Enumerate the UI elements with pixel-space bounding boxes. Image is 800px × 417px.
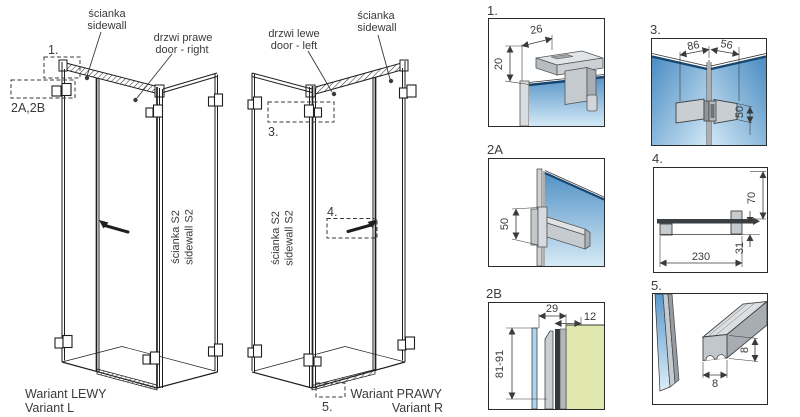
hinge-icon xyxy=(143,355,150,364)
left-texts: ścianka sidewall drzwi prawe door - righ… xyxy=(11,8,212,415)
variant-left-line2: Variant L xyxy=(25,401,74,415)
handle-bar xyxy=(657,219,753,224)
hinge-icon xyxy=(151,352,160,364)
wall-profile xyxy=(520,81,529,126)
dimension-20 xyxy=(505,46,529,85)
callout-2ab-label: 2A,2B xyxy=(11,101,45,115)
dim-20-text: 20 xyxy=(493,58,505,70)
callout-4-label: 4. xyxy=(327,205,337,219)
threshold-profile xyxy=(703,302,767,361)
detail-box-5: 8 8 xyxy=(652,293,768,405)
dim-50-text: 50 xyxy=(734,106,746,118)
left-drawing-svg: ścianka sidewall drzwi prawe door - righ… xyxy=(0,0,240,417)
dim-70-text: 70 xyxy=(746,192,758,204)
hinge-icon xyxy=(315,108,322,117)
variant-right-line2: Variant R xyxy=(392,401,443,415)
rear-bracket-icon xyxy=(254,345,262,357)
corner-hinge xyxy=(676,99,737,124)
door-label-line2: door - left xyxy=(271,40,317,52)
dimension-12 xyxy=(555,317,581,325)
detail-4-label: 4. xyxy=(652,152,663,166)
wall-bracket-icon xyxy=(406,337,415,349)
left-door-handle-icon xyxy=(99,220,128,232)
top-bar-wall-end xyxy=(400,60,408,71)
dim-230-text: 230 xyxy=(692,251,710,263)
technical-diagram-canvas: ścianka sidewall drzwi prawe door - righ… xyxy=(0,0,800,417)
sidewall-label-line2: sidewall xyxy=(87,20,126,32)
detail-1-label: 1. xyxy=(487,4,498,18)
s2-label-line1: ścianka S2 xyxy=(170,210,182,264)
dimension-81-91 xyxy=(506,328,547,399)
wall-profile-section xyxy=(545,329,566,409)
dim-8-width-text: 8 xyxy=(712,378,718,390)
detail-box-3: 86 56 50 xyxy=(651,38,767,146)
right-drawing-svg: drzwi lewe door - left ścianka sidewall … xyxy=(240,0,480,417)
wall-bracket-icon xyxy=(62,84,71,96)
dim-29-text: 29 xyxy=(546,303,558,315)
left-brackets xyxy=(52,84,223,365)
wall-bracket-icon xyxy=(398,340,406,350)
callout-box-3 xyxy=(268,102,334,122)
detail-3-drawing: 86 56 50 xyxy=(652,39,766,145)
dimension-29 xyxy=(539,314,566,328)
hinge-icon xyxy=(154,105,163,117)
dim-56-text: 56 xyxy=(719,39,733,52)
detail-box-2b: 29 12 81-91 xyxy=(488,302,605,410)
variant-left-line1: Wariant LEWY xyxy=(25,387,107,401)
handle-side-view xyxy=(657,211,760,235)
wall-bracket-icon xyxy=(55,338,63,348)
handle-mount-left xyxy=(660,224,672,235)
wall-bracket-icon xyxy=(52,86,61,96)
detail-2a-drawing: 50 xyxy=(489,159,604,266)
dim-8-height-text: 8 xyxy=(739,347,751,353)
callout-box-4 xyxy=(327,219,377,239)
dim-12-text: 12 xyxy=(584,311,596,323)
detail-4-drawing: 70 31 230 xyxy=(654,168,767,272)
dim-86-text: 86 xyxy=(686,39,700,53)
detail-box-4: 70 31 230 xyxy=(653,167,768,273)
hinge-icon xyxy=(305,105,314,117)
wall-bracket-icon xyxy=(407,85,416,97)
hinge-icon xyxy=(304,354,313,366)
wall-bracket-icon xyxy=(63,336,72,348)
callout-1-label: 1. xyxy=(48,43,58,57)
detail-1-drawing: 26 20 xyxy=(489,19,604,126)
callout-3-label: 3. xyxy=(268,125,278,139)
sidewall-label-line2: sidewall xyxy=(357,22,396,34)
detail-2b-label: 2B xyxy=(486,287,502,301)
s2-label-line1: ścianka S2 xyxy=(270,211,282,265)
detail-2b-drawing: 29 12 81-91 xyxy=(489,303,604,409)
dim-50-text: 50 xyxy=(499,218,511,230)
detail-2a-label: 2A xyxy=(487,143,503,157)
dim-31-text: 31 xyxy=(734,242,746,254)
glass-section xyxy=(532,328,537,409)
door-label-line1: drzwi prawe xyxy=(154,32,213,44)
s2-label-line2: sidewall S2 xyxy=(284,210,296,266)
dim-26-text: 26 xyxy=(529,23,543,37)
rear-bracket-icon xyxy=(215,344,223,356)
right-texts: drzwi lewe door - left ścianka sidewall … xyxy=(268,10,443,415)
variant-right-line1: Wariant PRAWY xyxy=(351,387,443,401)
detail-3-label: 3. xyxy=(650,23,661,37)
sidewall-label-line1: ścianka xyxy=(357,10,395,22)
wall-bracket-icon xyxy=(400,88,408,98)
handle-bar-tip xyxy=(753,218,760,226)
detail-box-1: 26 20 xyxy=(488,18,605,127)
dimension-8-width xyxy=(703,360,727,378)
sidewall-label-line1: ścianka xyxy=(88,8,126,20)
detail-5-label: 5. xyxy=(651,279,662,293)
door-label-line2: door - right xyxy=(155,44,208,56)
hinge-icon xyxy=(314,357,321,366)
door-label-line1: drzwi lewe xyxy=(268,28,319,40)
top-bar-wall-end xyxy=(59,60,67,71)
dim-81-91-text: 81-91 xyxy=(494,350,506,378)
wall-section xyxy=(566,325,604,409)
hinge-icon xyxy=(146,108,153,117)
detail-5-drawing: 8 8 xyxy=(653,294,767,404)
rear-bracket-icon xyxy=(215,94,223,106)
rear-bracket-icon xyxy=(254,97,262,109)
s2-label-line2: sidewall S2 xyxy=(184,209,196,265)
callout-5-label: 5. xyxy=(322,400,332,414)
top-bar xyxy=(312,62,405,95)
detail-box-2a: 50 xyxy=(488,158,605,267)
